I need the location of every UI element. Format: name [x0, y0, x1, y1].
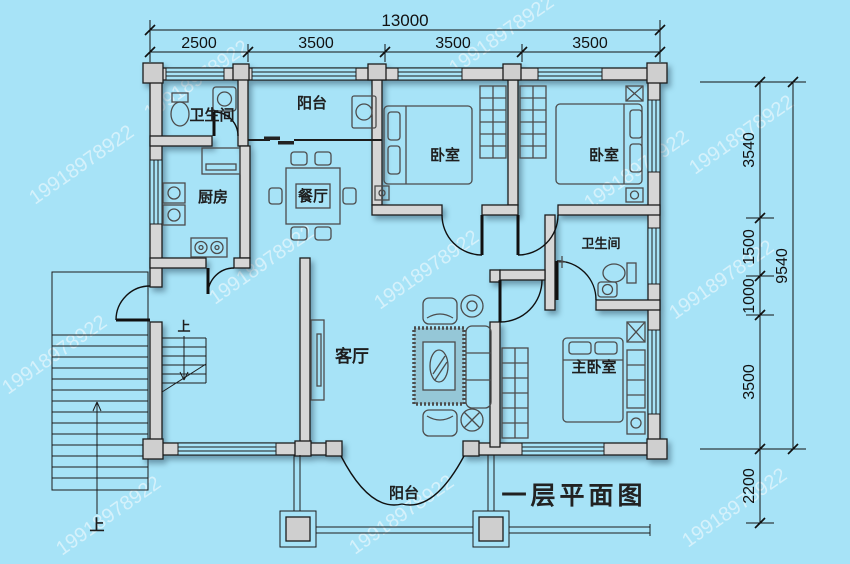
nightstand — [627, 322, 645, 342]
room-label-balcony-top: 阳台 — [297, 94, 327, 112]
dim-segment: 2500 — [181, 35, 217, 52]
room-label-master-bedroom: 主卧室 — [571, 358, 616, 376]
dim-segment: 3500 — [298, 35, 334, 52]
bed — [384, 106, 472, 184]
nightstand — [626, 188, 643, 202]
room-label-bedroom-right: 卧室 — [589, 146, 619, 164]
door-master-bedroom — [500, 280, 542, 322]
watermark-text: 19918978922 — [370, 226, 483, 314]
room-label-bathroom-top: 卫生间 — [189, 106, 234, 124]
window — [648, 100, 660, 172]
dim-total-height: 9540 — [774, 248, 791, 284]
room-label-balcony-bottom: 阳台 — [389, 484, 419, 502]
dim-segment: 3540 — [741, 132, 758, 168]
window — [150, 160, 162, 224]
dim-total-width: 13000 — [381, 11, 428, 30]
wardrobe — [502, 348, 528, 438]
room-label-living: 客厅 — [334, 346, 369, 366]
dim-segment: 1500 — [741, 229, 758, 265]
bed — [563, 338, 623, 422]
dim-segment: 3500 — [741, 364, 758, 400]
tv-cabinet — [311, 320, 324, 400]
watermark-text: 19918978922 — [0, 311, 111, 399]
room-label-kitchen: 厨房 — [198, 188, 228, 206]
dim-segment: 3500 — [572, 35, 608, 52]
windows — [150, 68, 660, 455]
toilet — [603, 263, 636, 283]
stair-up-label: 上 — [177, 319, 190, 334]
watermark-text: 19918978922 — [25, 121, 138, 209]
dim-segment: 1000 — [741, 278, 758, 314]
window — [648, 228, 660, 284]
window — [166, 68, 224, 80]
wardrobe — [520, 86, 546, 158]
stair-direction-arrow — [180, 336, 188, 380]
sink — [598, 282, 617, 297]
balcony-column — [473, 511, 509, 547]
stair-up-label: 上 — [89, 517, 104, 534]
window — [522, 443, 604, 455]
watermark-text: 19918978922 — [580, 126, 693, 214]
dim-segment: 3500 — [435, 35, 471, 52]
window — [178, 443, 276, 455]
floor-plan-page: 19918978922 19918978922 19918978922 1991… — [0, 0, 850, 564]
door-entry-left — [116, 286, 150, 320]
floor-plan-drawing: 19918978922 19918978922 19918978922 1991… — [0, 0, 850, 564]
room-label-bedroom-left: 卧室 — [430, 146, 460, 164]
watermark-layer: 19918978922 19918978922 19918978922 1991… — [0, 0, 798, 560]
stair-direction-arrow — [93, 402, 101, 514]
window — [398, 68, 462, 80]
plan-caption: 一层平面图 — [501, 482, 646, 510]
sofa-set — [414, 295, 491, 436]
watermark-text: 19918978922 — [665, 236, 778, 324]
dresser — [627, 350, 645, 408]
door-bathroom-right — [557, 261, 596, 300]
watermark-text: 19918978922 — [678, 464, 791, 552]
dim-segment: 2200 — [741, 468, 758, 504]
window — [648, 330, 660, 414]
kitchen-sink — [163, 183, 185, 225]
bench — [627, 412, 645, 434]
interior-staircase: 上 — [162, 319, 206, 392]
window — [252, 68, 356, 80]
room-label-bathroom-right: 卫生间 — [581, 236, 620, 251]
room-label-dining: 餐厅 — [298, 187, 328, 205]
kitchen-counter — [202, 148, 240, 174]
nightstand — [626, 86, 643, 101]
stove — [191, 238, 227, 257]
window — [538, 68, 602, 80]
balcony-column — [280, 511, 316, 547]
wardrobe — [480, 86, 506, 158]
